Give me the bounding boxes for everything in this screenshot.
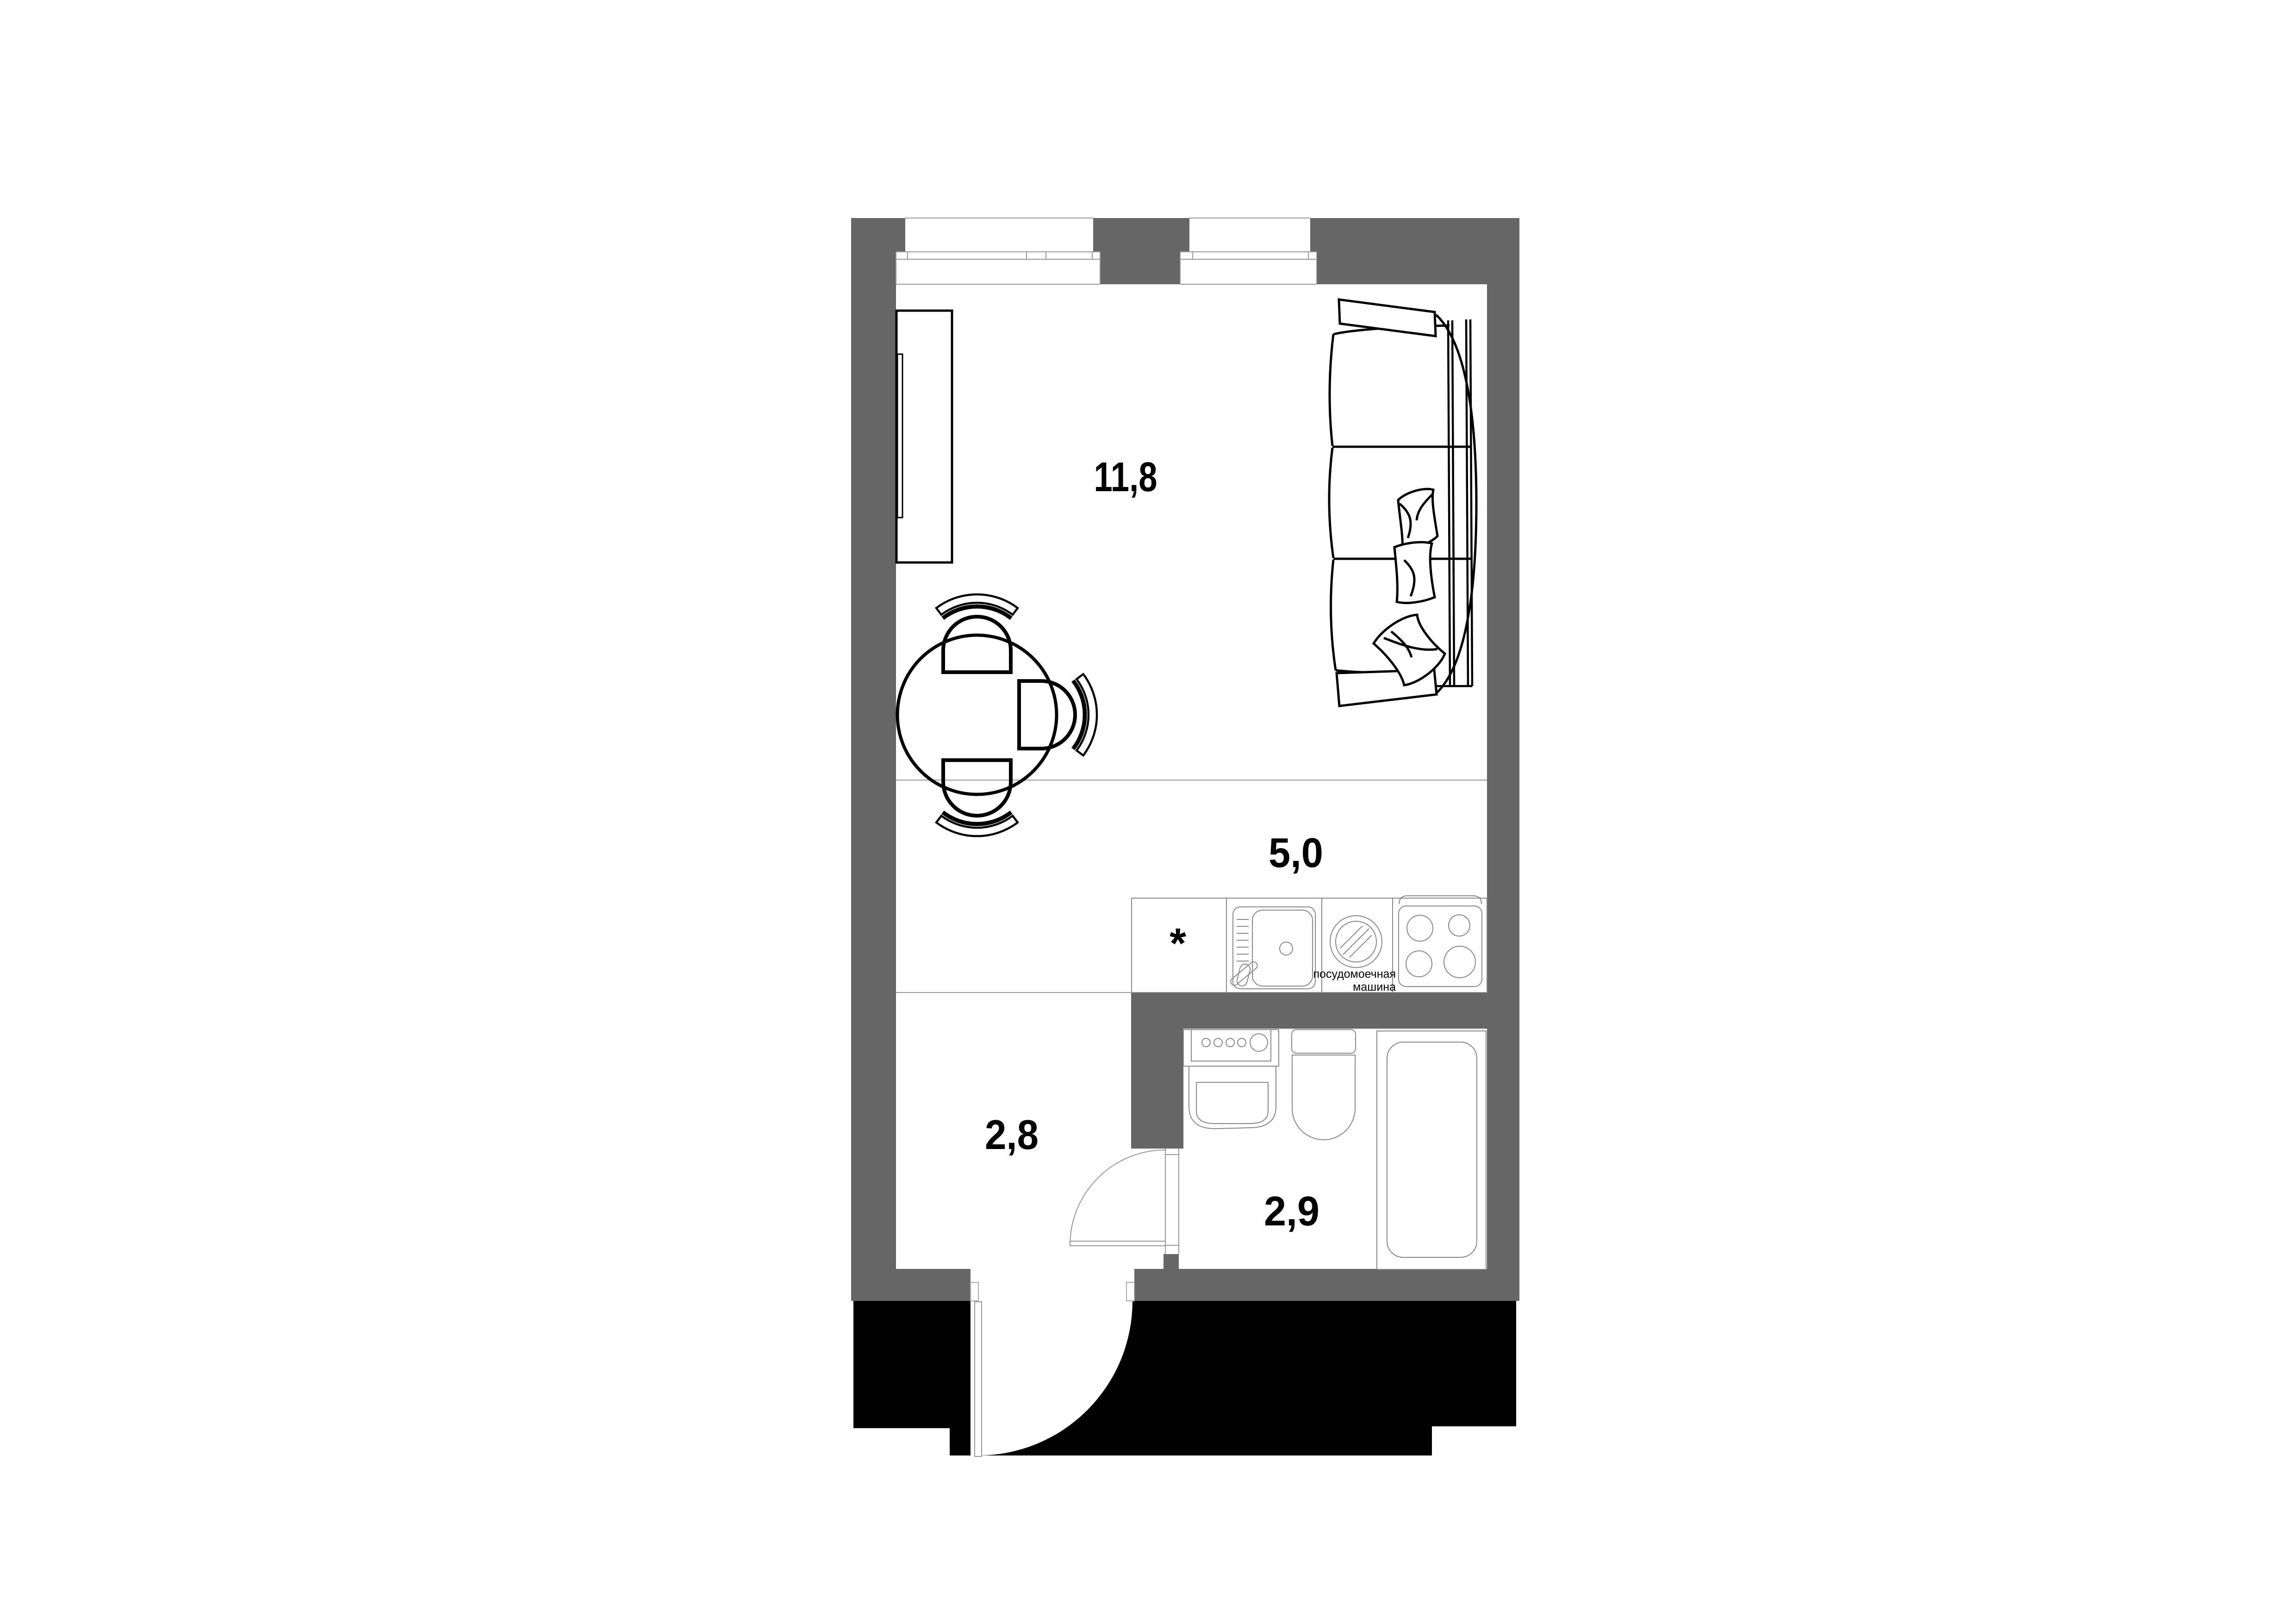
svg-text:посудомоечная: посудомоечная <box>1313 968 1396 981</box>
svg-text:машина: машина <box>1353 981 1396 993</box>
svg-text:11,8: 11,8 <box>1094 454 1157 500</box>
svg-text:5,0: 5,0 <box>1269 830 1323 876</box>
svg-text:*: * <box>1170 920 1186 967</box>
svg-text:2,8: 2,8 <box>985 1112 1039 1158</box>
svg-text:2,9: 2,9 <box>1264 1188 1319 1235</box>
